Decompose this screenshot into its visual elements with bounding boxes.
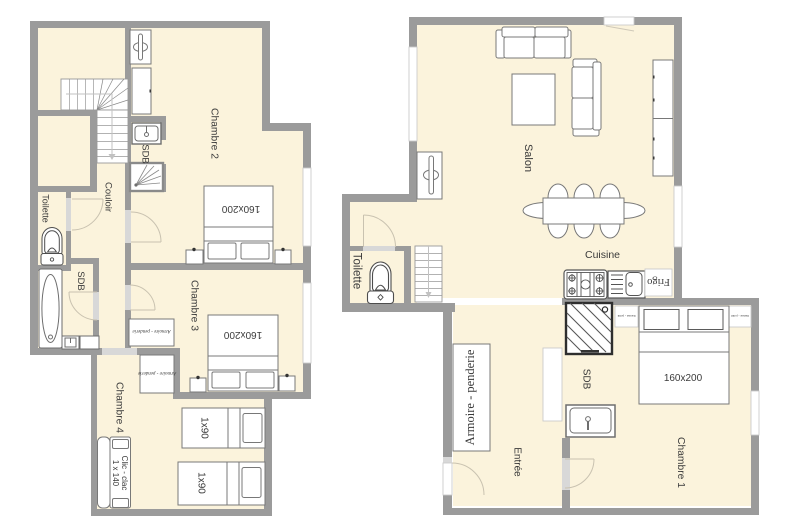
- svg-text:1x90: 1x90: [196, 472, 207, 494]
- svg-text:Cuisine: Cuisine: [585, 249, 620, 261]
- svg-text:Clic - clac1 x 140: Clic - clac1 x 140: [111, 456, 129, 491]
- svg-text:160x200: 160x200: [221, 203, 260, 214]
- svg-text:Toilette: Toilette: [41, 194, 51, 223]
- svg-text:160x200: 160x200: [664, 373, 703, 384]
- svg-text:SDB: SDB: [581, 369, 592, 390]
- svg-text:liseuse - point: liseuse - point: [731, 314, 749, 318]
- svg-text:Entrée: Entrée: [512, 447, 523, 477]
- svg-text:Salon: Salon: [522, 144, 534, 172]
- svg-text:1x90: 1x90: [199, 417, 210, 439]
- svg-text:liseuse - point: liseuse - point: [617, 314, 635, 318]
- svg-text:Chambre 2: Chambre 2: [208, 108, 219, 159]
- svg-text:Couloir: Couloir: [103, 182, 114, 212]
- svg-text:Armoire - penderie: Armoire - penderie: [137, 370, 177, 375]
- svg-text:SDB: SDB: [75, 271, 86, 291]
- svg-text:SDB: SDB: [140, 144, 151, 164]
- svg-text:Chambre 4: Chambre 4: [113, 382, 124, 433]
- svg-text:Chambre 1: Chambre 1: [675, 437, 686, 488]
- svg-text:160x200: 160x200: [223, 329, 262, 340]
- svg-text:Armoire - penderie: Armoire - penderie: [132, 328, 172, 333]
- svg-text:Chambre 3: Chambre 3: [188, 280, 199, 331]
- svg-text:Armoire - penderie: Armoire - penderie: [463, 349, 477, 445]
- svg-text:Toilette: Toilette: [350, 253, 362, 289]
- svg-text:Frigo: Frigo: [647, 276, 670, 287]
